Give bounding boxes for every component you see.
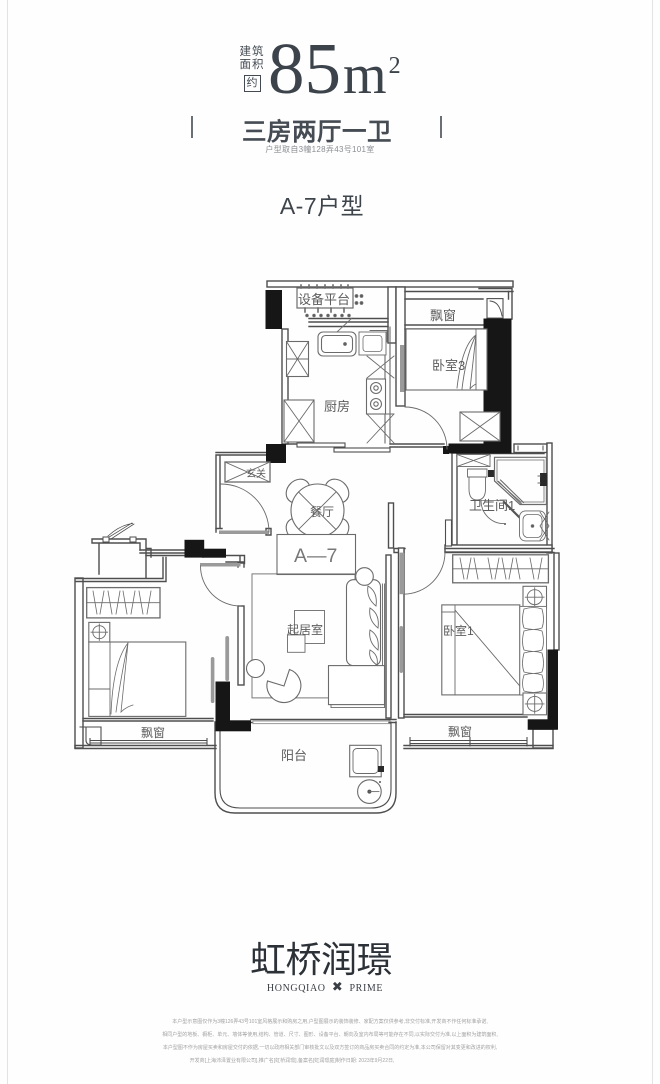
svg-text:飘窗: 飘窗 xyxy=(430,308,456,323)
svg-text:卧室1: 卧室1 xyxy=(443,623,474,638)
svg-text:玄关: 玄关 xyxy=(246,467,266,480)
svg-text:阳台: 阳台 xyxy=(281,748,307,763)
svg-text:A—7: A—7 xyxy=(294,545,337,567)
svg-text:飘窗: 飘窗 xyxy=(141,726,165,740)
svg-text:厨房: 厨房 xyxy=(324,399,350,414)
svg-text:飘窗: 飘窗 xyxy=(448,725,472,739)
svg-text:设备平台: 设备平台 xyxy=(298,292,350,307)
svg-text:卧室3: 卧室3 xyxy=(432,358,465,373)
svg-text:起居室: 起居室 xyxy=(287,622,323,637)
svg-text:餐厅: 餐厅 xyxy=(310,504,334,519)
svg-text:卫生间1: 卫生间1 xyxy=(469,498,515,513)
